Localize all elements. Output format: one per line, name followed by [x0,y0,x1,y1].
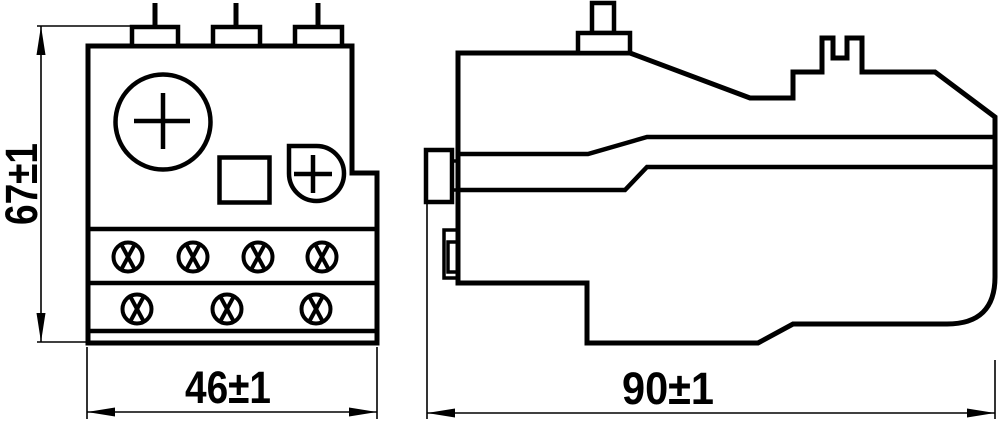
relay-dimension-drawing: 67±1 46±1 90±1 [0,0,1000,422]
side-terminal-base [578,33,630,53]
arrowhead-left-icon [87,408,115,417]
arrowhead-right-icon [349,408,377,417]
arrowhead-down-icon [37,313,46,342]
front-view [88,3,377,343]
terminal-screw [123,295,152,324]
side-view [426,3,995,343]
arrowhead-up-icon [37,26,46,55]
terminal-screw [179,243,208,272]
dimension-drawing: 67±1 46±1 90±1 [0,0,1000,422]
terminal-base [132,27,178,46]
side-screw-head [426,150,452,202]
terminal-screw [213,295,242,324]
arrowhead-left-icon [427,409,455,418]
terminal-screw [302,295,331,324]
side-terminal-pin [592,3,614,33]
side-width-dimension-label: 90±1 [622,363,714,414]
terminal-screw [114,243,143,272]
height-dimension-label: 67±1 [0,143,47,225]
terminal-base [213,27,260,46]
terminal-screw [244,243,273,272]
terminal-base [295,27,342,46]
dimension-front-width: 46±1 [87,347,377,419]
arrowhead-right-icon [967,409,995,418]
terminal-screw [308,243,337,272]
side-screw-shaft [452,161,458,190]
front-width-dimension-label: 46±1 [185,362,271,413]
